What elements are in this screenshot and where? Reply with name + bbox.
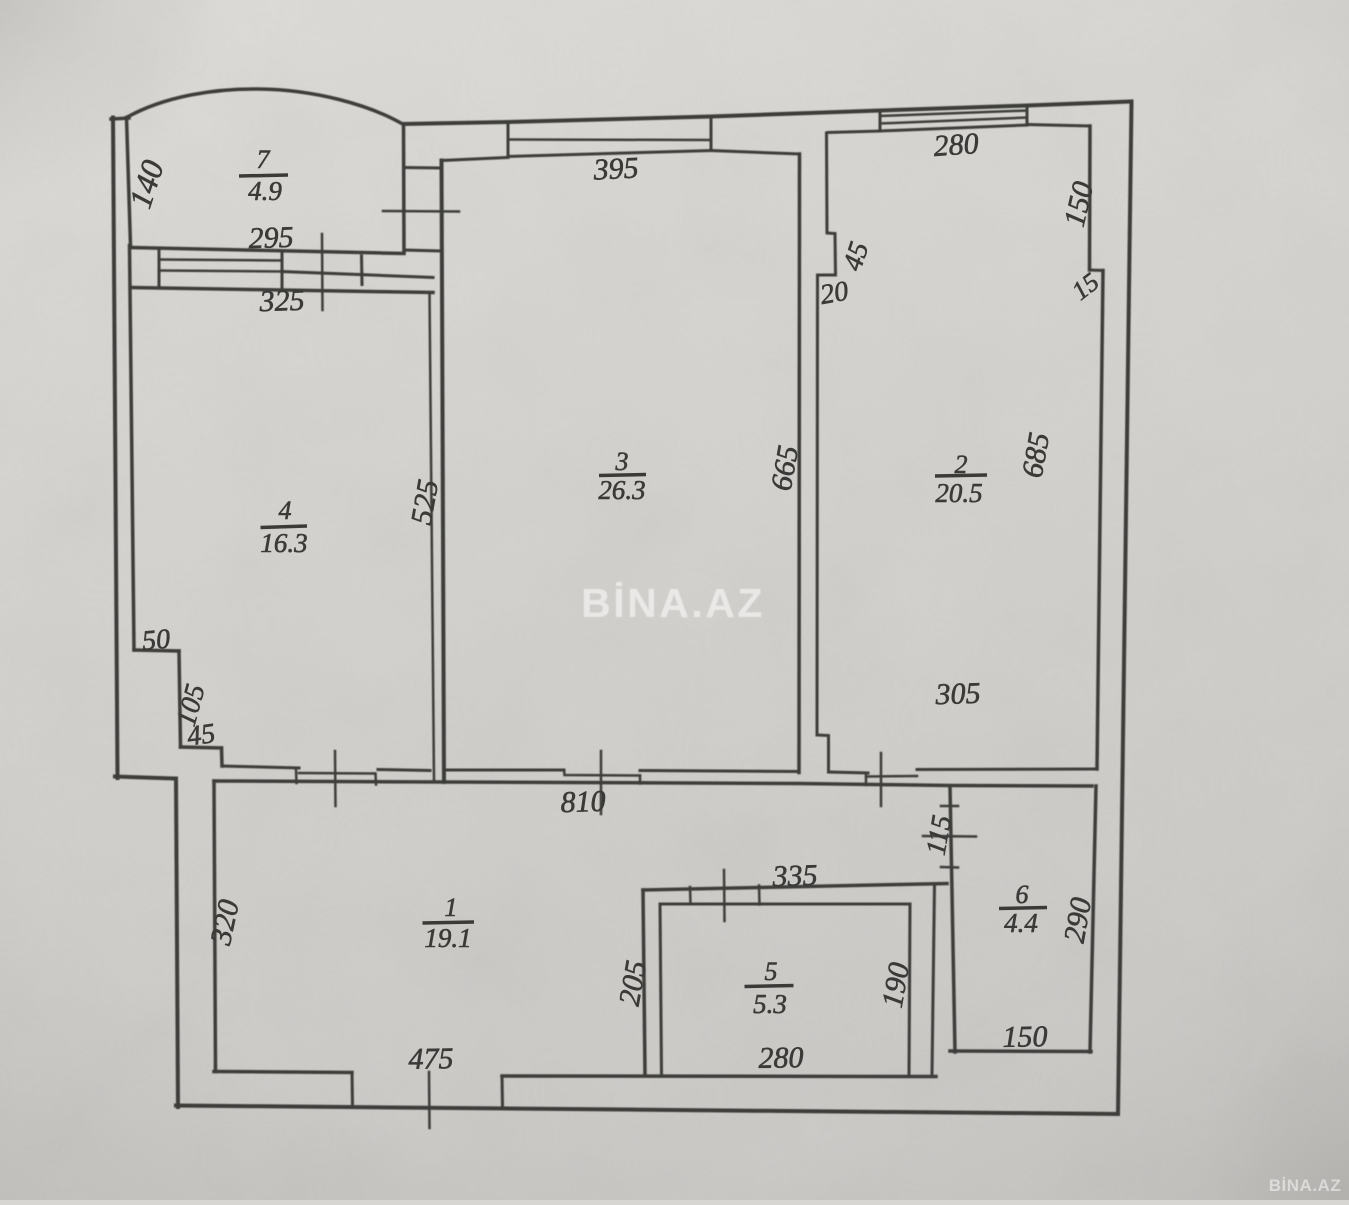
svg-text:4: 4: [279, 496, 292, 525]
svg-text:20.5: 20.5: [935, 478, 982, 508]
svg-text:810: 810: [560, 785, 606, 820]
svg-text:BİNA.AZ: BİNA.AZ: [581, 580, 765, 626]
svg-text:3: 3: [615, 447, 629, 476]
svg-text:295: 295: [248, 221, 294, 256]
svg-text:150: 150: [1002, 1020, 1048, 1054]
svg-text:20: 20: [818, 276, 851, 311]
svg-text:1: 1: [445, 893, 458, 922]
svg-text:7: 7: [257, 145, 271, 174]
svg-text:280: 280: [932, 127, 979, 163]
svg-text:325: 325: [258, 284, 305, 319]
svg-text:16.3: 16.3: [260, 528, 307, 558]
svg-text:50: 50: [141, 624, 172, 657]
svg-text:5: 5: [765, 957, 778, 986]
svg-text:5.3: 5.3: [753, 989, 787, 1019]
svg-text:475: 475: [408, 1042, 454, 1076]
svg-text:4.4: 4.4: [1004, 908, 1038, 938]
svg-text:19.1: 19.1: [424, 923, 471, 953]
svg-text:280: 280: [758, 1041, 804, 1075]
svg-text:26.3: 26.3: [598, 475, 645, 505]
svg-text:305: 305: [934, 677, 981, 712]
svg-text:4.9: 4.9: [248, 176, 282, 206]
svg-text:395: 395: [592, 151, 640, 186]
svg-text:BİNA.AZ: BİNA.AZ: [1269, 1176, 1341, 1195]
svg-text:335: 335: [771, 859, 818, 894]
svg-text:45: 45: [185, 718, 217, 753]
svg-text:6: 6: [1016, 880, 1029, 909]
